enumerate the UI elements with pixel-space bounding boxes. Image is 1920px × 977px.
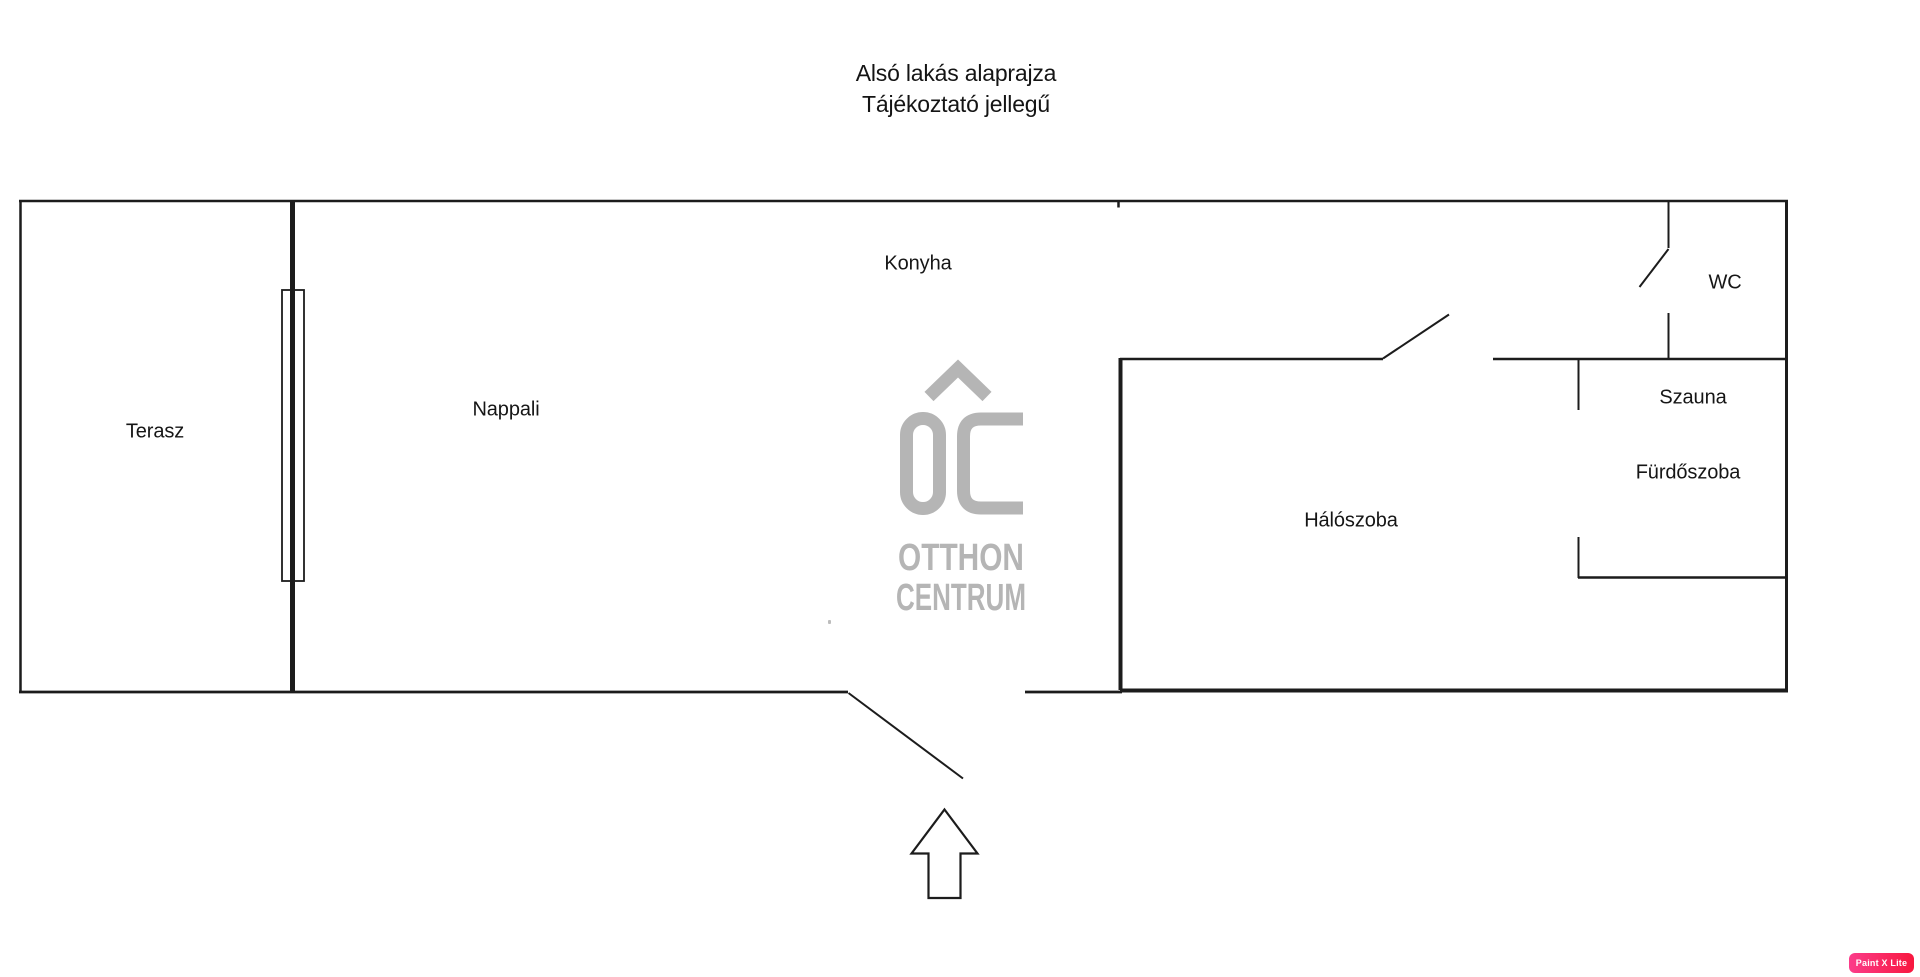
room-label-wc: WC (1708, 272, 1741, 295)
logo-letter-c (964, 419, 1024, 508)
room-label-konyha: Konyha (884, 253, 951, 276)
interior-walls (293, 200, 1789, 691)
logo-letter-o (907, 419, 940, 509)
otthon-centrum-watermark: OTTHON CENTRUM (896, 369, 1026, 620)
room-label-nappali: Nappali (472, 399, 539, 422)
entrance-door-swing (849, 693, 964, 779)
paint-badge-label: Paint X Lite (1856, 958, 1907, 968)
room-label-terasz: Terasz (126, 421, 184, 444)
wc-door-swing (1640, 249, 1669, 287)
haloszoba-door-swing (1383, 315, 1449, 359)
logo-word-otthon: OTTHON (898, 537, 1024, 579)
stray-pixel-artifact (828, 620, 831, 624)
logo-word-centrum: CENTRUM (896, 577, 1026, 619)
room-label-szauna: Szauna (1659, 387, 1726, 410)
floor-plan-page: Alsó lakás alaprajza Tájékoztató jellegű (0, 0, 1920, 977)
floor-plan-drawing: OTTHON CENTRUM (0, 0, 1920, 977)
door-swings (849, 249, 1669, 779)
room-label-haloszoba: Hálószoba (1304, 510, 1398, 533)
logo-roof-icon (929, 369, 987, 397)
entrance-arrow-icon (912, 810, 978, 899)
room-label-furdoszoba: Fürdőszoba (1636, 462, 1741, 485)
paint-x-lite-watermark-badge: Paint X Lite (1849, 953, 1914, 973)
